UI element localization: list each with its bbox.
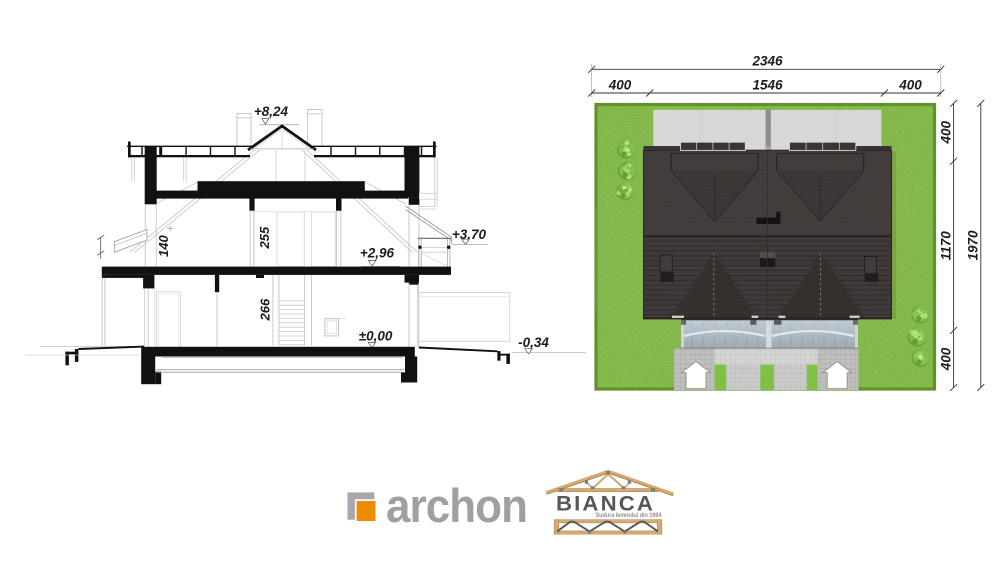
- svg-text:Sudura lemnului din 1994: Sudura lemnului din 1994: [596, 512, 662, 519]
- svg-text:400: 400: [608, 78, 632, 93]
- svg-text:+3,70: +3,70: [452, 227, 487, 242]
- svg-text:400: 400: [898, 78, 922, 93]
- svg-text:±0,00: ±0,00: [359, 329, 393, 344]
- svg-text:140: 140: [156, 235, 171, 257]
- svg-text:400: 400: [939, 120, 954, 144]
- svg-text:1170: 1170: [939, 231, 954, 261]
- svg-text:255: 255: [257, 226, 272, 249]
- svg-text:266: 266: [258, 298, 273, 321]
- svg-text:2346: 2346: [751, 54, 783, 69]
- svg-text:1546: 1546: [752, 78, 783, 93]
- svg-text:+2,96: +2,96: [360, 246, 395, 261]
- svg-text:1970: 1970: [966, 230, 981, 261]
- svg-text:-0,34: -0,34: [518, 335, 549, 350]
- svg-text:400: 400: [939, 347, 954, 371]
- svg-text:+8,24: +8,24: [254, 104, 289, 119]
- svg-text:archon: archon: [386, 479, 527, 532]
